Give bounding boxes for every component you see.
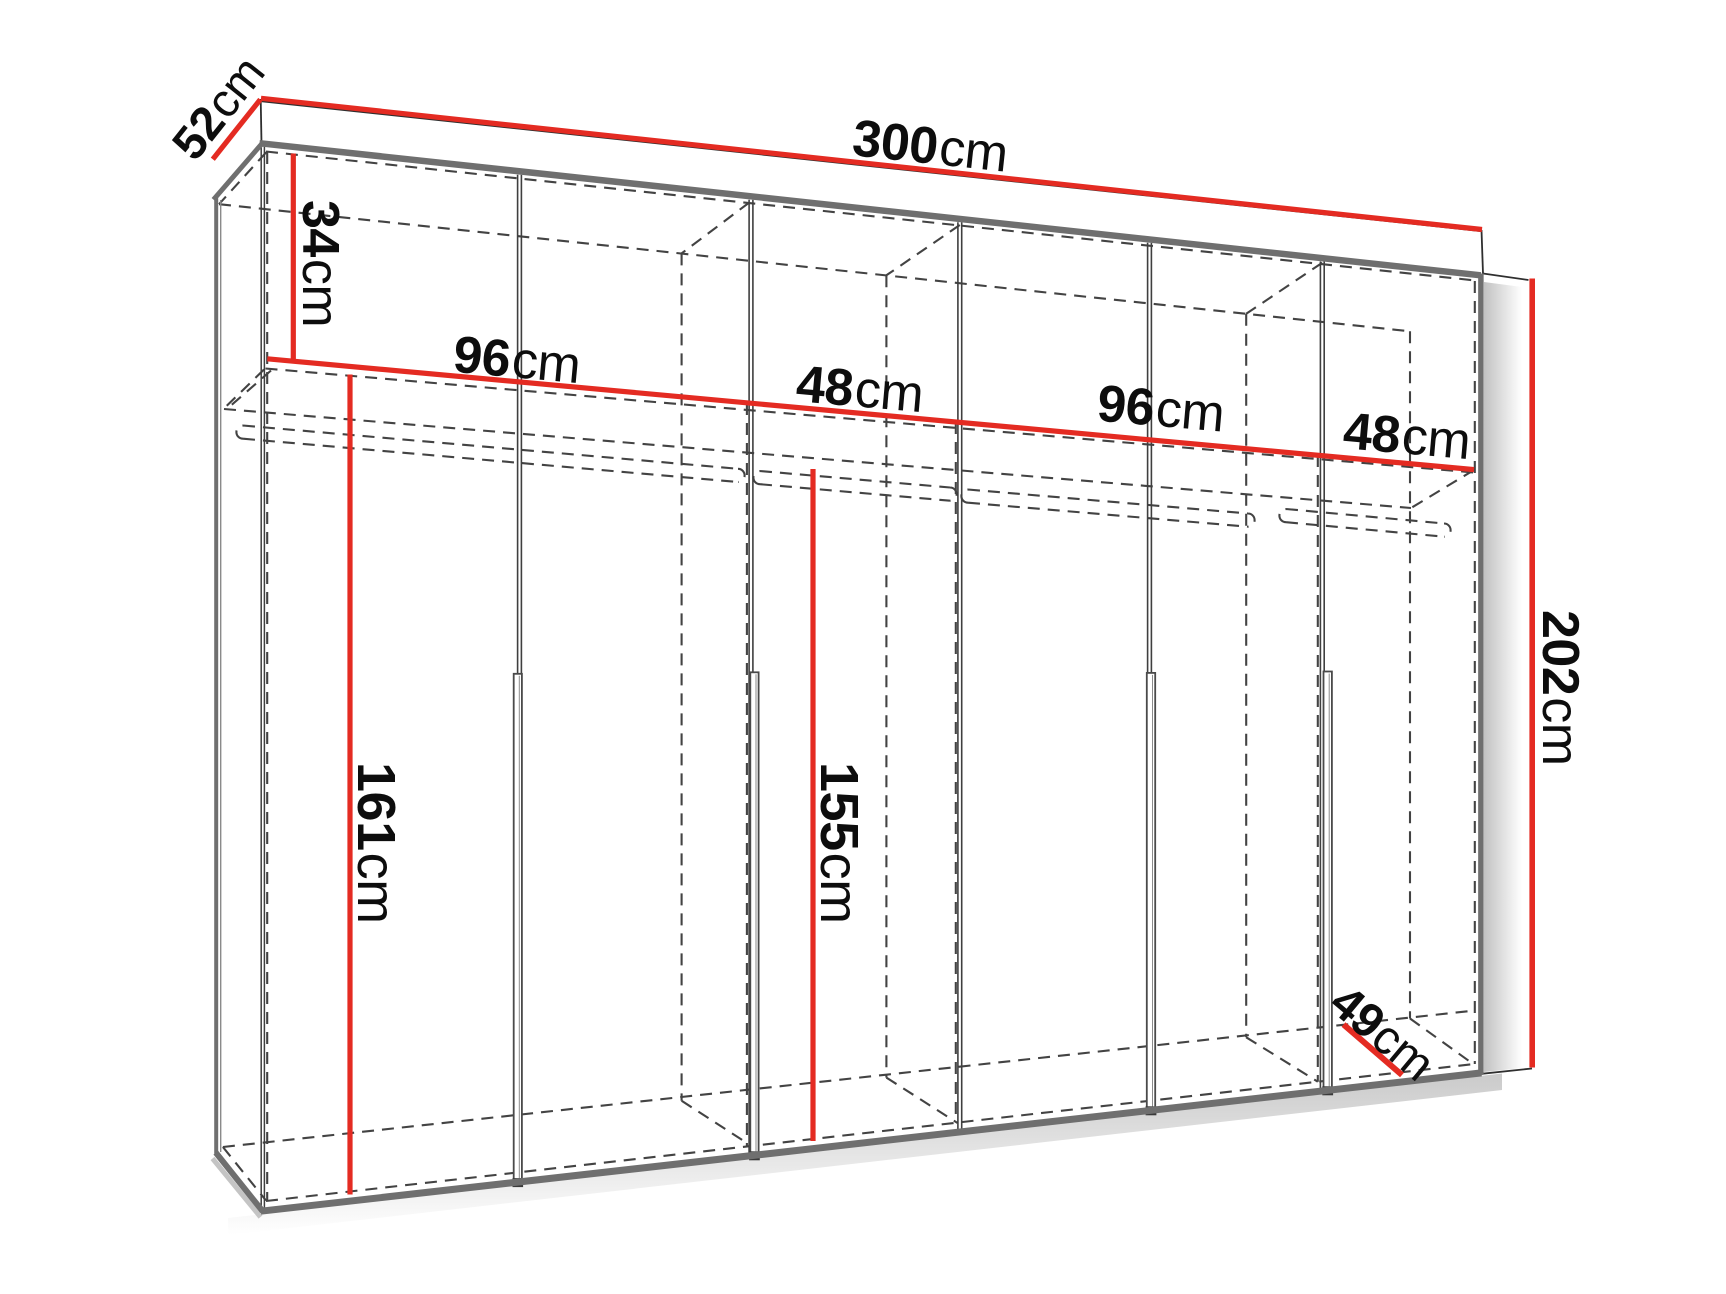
svg-text:96cm: 96cm (451, 326, 583, 395)
svg-text:48cm: 48cm (794, 355, 926, 424)
svg-text:96cm: 96cm (1095, 375, 1227, 444)
svg-text:48cm: 48cm (1341, 402, 1473, 471)
svg-text:161cm: 161cm (346, 762, 406, 924)
svg-text:155cm: 155cm (809, 762, 869, 924)
svg-text:202cm: 202cm (1531, 610, 1589, 766)
svg-text:34cm: 34cm (291, 200, 349, 327)
